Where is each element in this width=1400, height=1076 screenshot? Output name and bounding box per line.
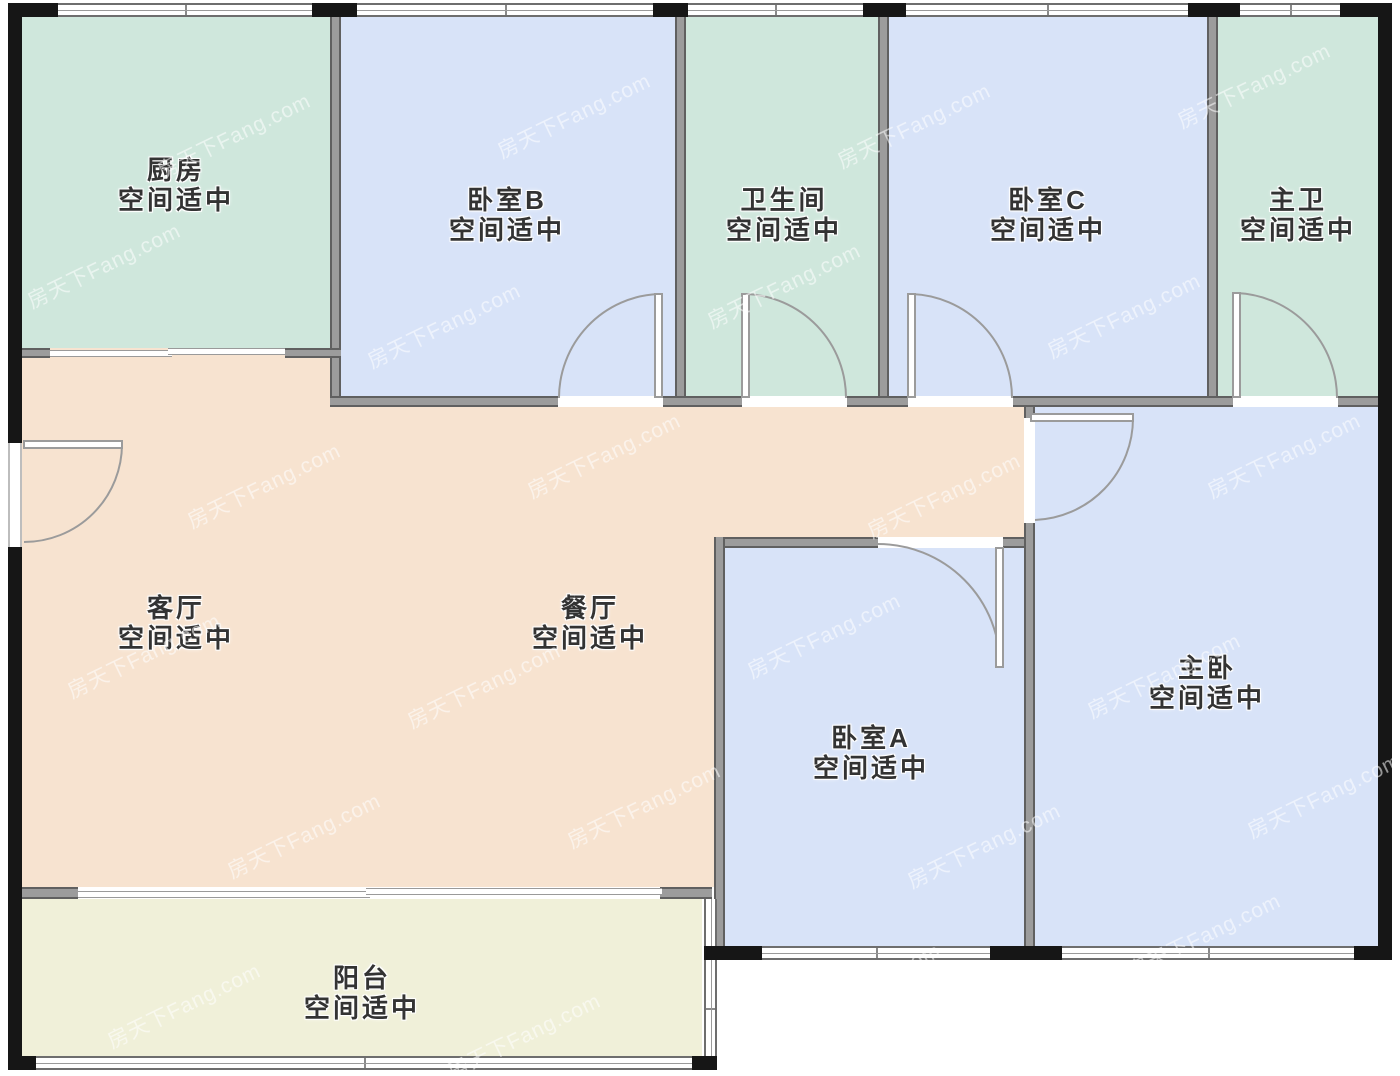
room-name: 主卫 xyxy=(1240,185,1356,215)
balcony-sliding-opening xyxy=(78,891,370,898)
bedroom-a-door-gap xyxy=(878,537,1003,548)
room-label-kitchen: 厨房 空间适中 xyxy=(118,155,234,215)
room-status: 空间适中 xyxy=(813,753,929,783)
exterior-wall xyxy=(653,3,688,17)
room-name: 厨房 xyxy=(118,155,234,185)
room-status: 空间适中 xyxy=(449,215,565,245)
wall-kitchen-bottom xyxy=(22,348,50,358)
exterior-wall xyxy=(863,3,906,17)
room-status: 空间适中 xyxy=(1149,683,1265,713)
exterior-wall xyxy=(704,946,762,960)
room-label-bathroom: 卫生间 空间适中 xyxy=(726,185,842,245)
room-name: 卧室B xyxy=(449,185,565,215)
exterior-wall xyxy=(990,946,1062,960)
room-label-master-bath: 主卫 空间适中 xyxy=(1240,185,1356,245)
bedroom-c-door-gap xyxy=(908,396,1013,407)
wall-bedroom-a-master xyxy=(1024,523,1035,946)
wall-bedroom-a-top xyxy=(1003,537,1024,548)
master-bath-door-gap xyxy=(1233,396,1338,407)
master-bedroom-window xyxy=(1062,946,1354,960)
room-name: 卧室C xyxy=(990,185,1106,215)
entry-door-gap xyxy=(8,443,22,547)
exterior-wall xyxy=(312,3,357,17)
wall-bathroom-bedroom-c xyxy=(878,17,889,407)
bedroom-a-window xyxy=(762,946,990,960)
bathroom-door-gap xyxy=(742,396,847,407)
room-name: 阳台 xyxy=(304,963,420,993)
wall-corridor-master xyxy=(1024,407,1035,418)
room-name: 卧室A xyxy=(813,723,929,753)
room-name: 卫生间 xyxy=(726,185,842,215)
bedroom-c-window xyxy=(906,3,1188,17)
bedroom-b-door-gap xyxy=(558,396,663,407)
room-label-bedroom-c: 卧室C 空间适中 xyxy=(990,185,1106,245)
room-name: 餐厅 xyxy=(532,593,648,623)
wall-bedroom-a-left xyxy=(714,537,725,946)
balcony-side-window xyxy=(704,960,717,1056)
exterior-wall-left xyxy=(8,547,22,1070)
wall-bedroom-b-bathroom xyxy=(675,17,686,407)
floor-plan: 厨房 空间适中 卧室B 空间适中 卫生间 空间适中 卧室C 空间适中 主卫 空间… xyxy=(0,0,1400,1076)
room-status: 空间适中 xyxy=(990,215,1106,245)
room-status: 空间适中 xyxy=(118,623,234,653)
balcony-sliding-opening xyxy=(366,888,662,895)
kitchen-sliding-opening xyxy=(50,350,172,357)
balcony-window xyxy=(36,1056,692,1070)
wall-living-balcony xyxy=(22,887,78,899)
room-label-bedroom-a: 卧室A 空间适中 xyxy=(813,723,929,783)
room-status: 空间适中 xyxy=(726,215,842,245)
room-label-bedroom-b: 卧室B 空间适中 xyxy=(449,185,565,245)
wall-hall-band xyxy=(1013,396,1233,407)
room-name: 客厅 xyxy=(118,593,234,623)
kitchen-sliding-opening xyxy=(168,348,285,355)
kitchen-window xyxy=(58,3,312,17)
room-name: 主卧 xyxy=(1149,653,1265,683)
wall-bedroom-a-top xyxy=(714,537,878,548)
bathroom-window xyxy=(688,3,863,17)
wall-bedroom-c-master-bath xyxy=(1207,17,1218,407)
room-label-balcony: 阳台 空间适中 xyxy=(304,963,420,1023)
room-label-dining-room: 餐厅 空间适中 xyxy=(532,593,648,653)
exterior-wall-left xyxy=(8,3,22,443)
room-status: 空间适中 xyxy=(118,185,234,215)
exterior-wall xyxy=(8,1056,36,1070)
wall-kitchen-bottom xyxy=(285,348,341,358)
exterior-wall xyxy=(692,1056,717,1070)
wall-hall-band xyxy=(663,396,742,407)
room-status: 空间适中 xyxy=(532,623,648,653)
bedroom-b-window xyxy=(357,3,653,17)
master-bath-window xyxy=(1240,3,1340,17)
room-status: 空间适中 xyxy=(304,993,420,1023)
room-status: 空间适中 xyxy=(1240,215,1356,245)
room-label-living-room: 客厅 空间适中 xyxy=(118,593,234,653)
balcony-side-window xyxy=(704,899,717,946)
exterior-wall xyxy=(1354,946,1392,960)
master-bedroom-door-gap xyxy=(1024,418,1035,523)
exterior-wall xyxy=(1188,3,1240,17)
wall-living-balcony xyxy=(660,887,712,899)
room-label-master-bedroom: 主卧 空间适中 xyxy=(1149,653,1265,713)
wall-hall-band xyxy=(330,396,558,407)
wall-hall-band xyxy=(847,396,908,407)
exterior-wall-right xyxy=(1378,3,1392,960)
